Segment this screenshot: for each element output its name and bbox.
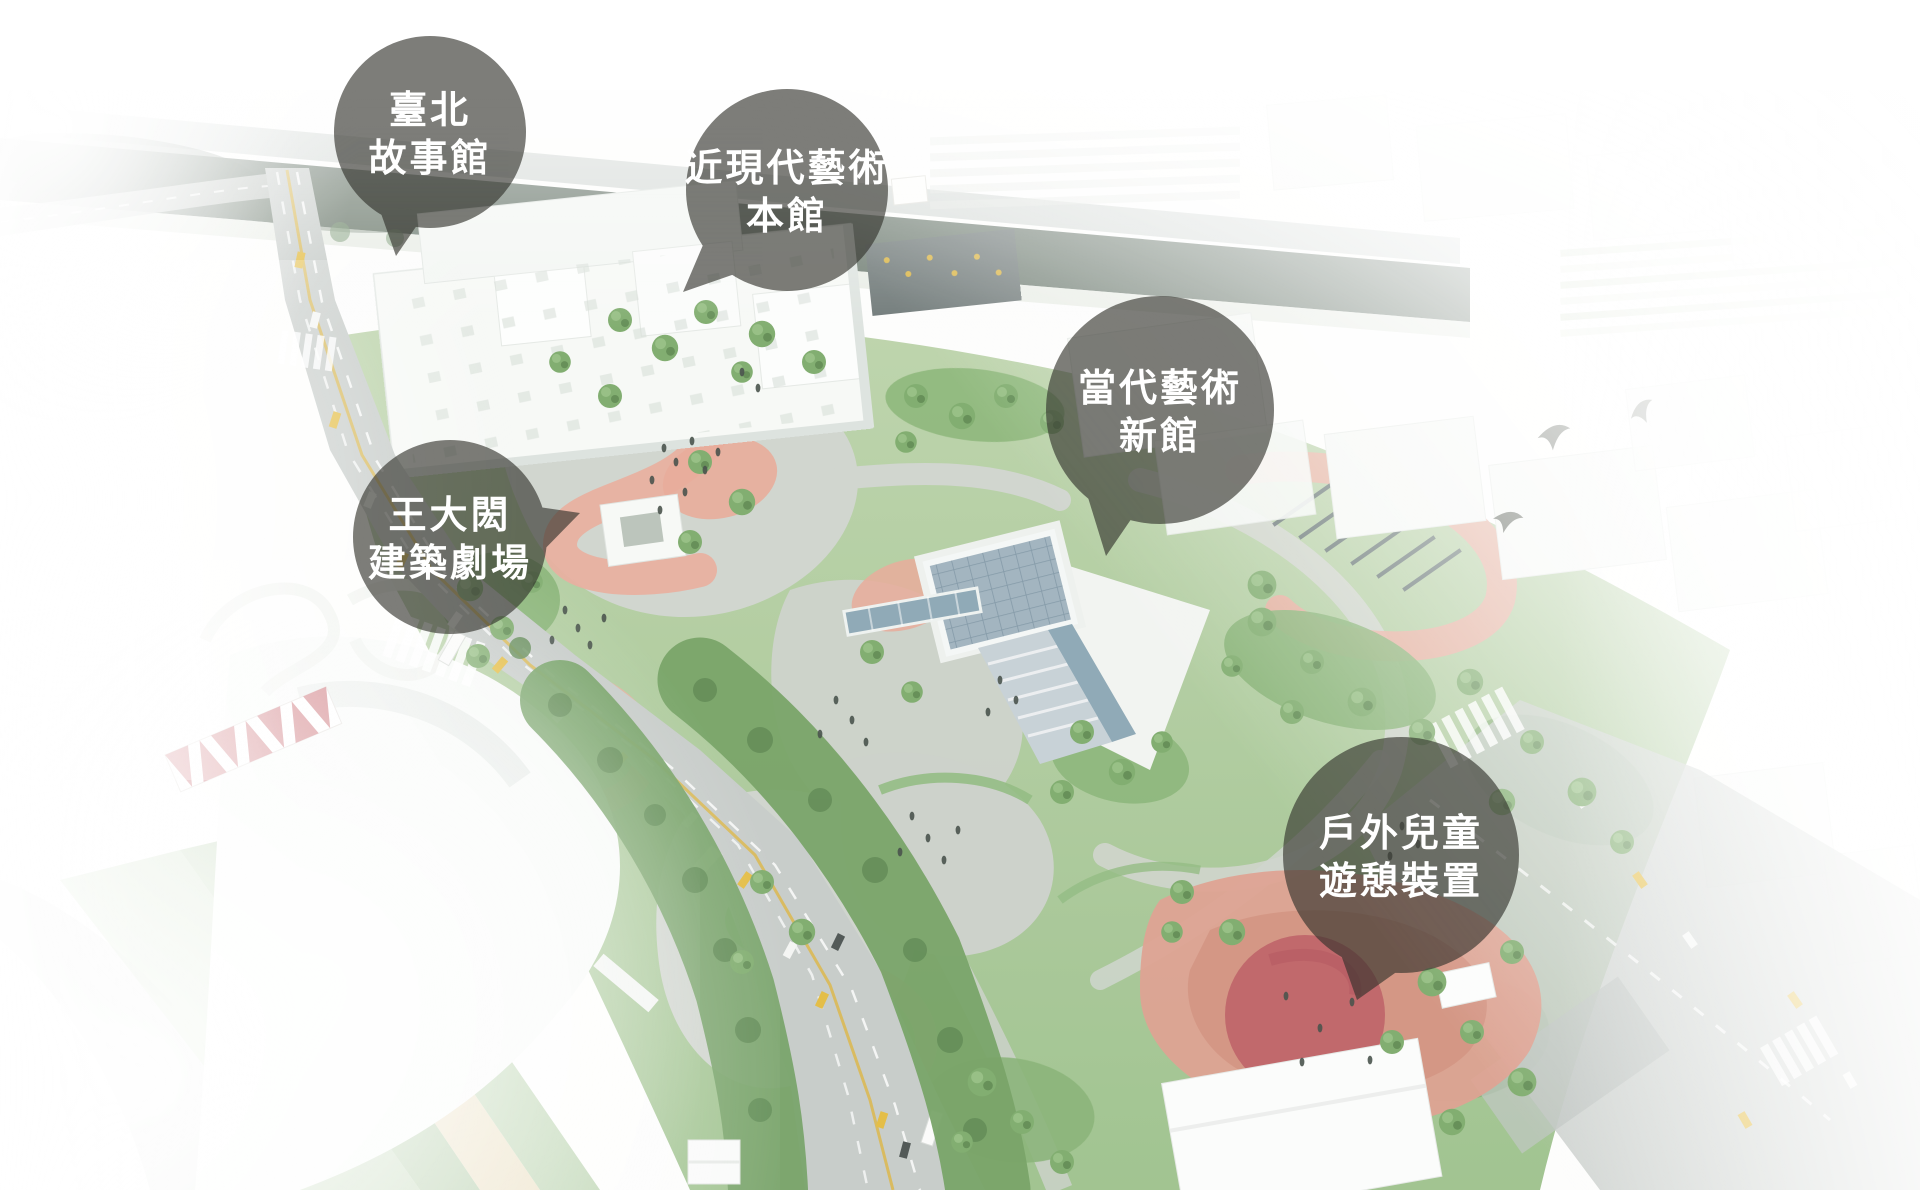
park-aerial-infographic: 臺北 故事館 近現代藝術 本館 當代藝術 新館 王大閎 建築劇場 [0, 0, 1920, 1190]
callout-label-line2: 本館 [746, 196, 828, 238]
callout-label-line1: 臺北 [389, 90, 471, 132]
white-fade-overlays [0, 0, 1920, 1190]
callout-label-line1: 當代藝術 [1078, 368, 1242, 410]
callout-label-line2: 故事館 [368, 138, 491, 180]
callout-label-line1: 王大閎 [388, 495, 511, 537]
callout-label-line1: 近現代藝術 [684, 148, 889, 190]
callout-label-line1: 戶外兒童 [1319, 812, 1483, 855]
callout-label-line2: 建築劇場 [368, 543, 532, 585]
callout-label-line2: 遊憩裝置 [1319, 861, 1483, 903]
aerial-rendering: 臺北 故事館 近現代藝術 本館 當代藝術 新館 王大閎 建築劇場 [0, 0, 1920, 1190]
callout-label-line2: 新館 [1119, 416, 1201, 458]
